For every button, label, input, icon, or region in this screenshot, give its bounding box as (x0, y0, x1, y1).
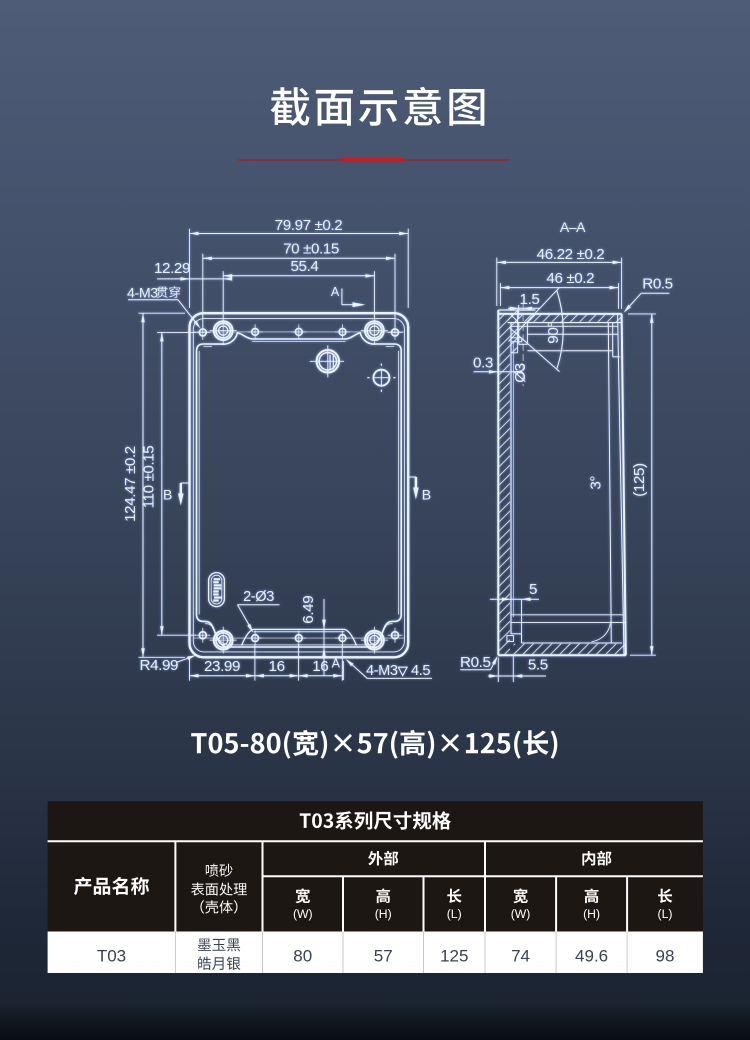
svg-text:110 ±0.15: 110 ±0.15 (141, 446, 158, 509)
svg-text:R0.5: R0.5 (460, 654, 490, 671)
svg-text:4-M3: 4-M3 (366, 663, 398, 679)
svg-text:(W): (W) (511, 907, 531, 921)
svg-text:49.6: 49.6 (575, 947, 608, 966)
svg-text:R0.5: R0.5 (642, 275, 672, 292)
svg-text:B: B (163, 487, 172, 503)
svg-text:A: A (332, 657, 341, 671)
svg-text:T03: T03 (97, 947, 126, 966)
svg-text:124.47 ±0.2: 124.47 ±0.2 (122, 446, 139, 522)
svg-text:125: 125 (440, 947, 468, 966)
svg-text:6.49: 6.49 (300, 596, 317, 624)
svg-text:90°: 90° (545, 322, 562, 344)
svg-text:(L): (L) (658, 907, 673, 921)
svg-text:23.99: 23.99 (204, 658, 240, 675)
svg-text:74: 74 (511, 947, 530, 966)
svg-text:(H): (H) (583, 907, 600, 921)
svg-text:B: B (422, 487, 431, 503)
svg-text:57: 57 (374, 947, 393, 966)
svg-text:1.5: 1.5 (520, 291, 540, 308)
svg-text:2-Ø3: 2-Ø3 (243, 589, 274, 605)
svg-text:5: 5 (529, 581, 537, 598)
svg-text:A: A (331, 285, 340, 299)
svg-text:46 ±0.2: 46 ±0.2 (546, 270, 594, 287)
svg-text:12.29: 12.29 (154, 260, 190, 277)
svg-text:46.22 ±0.2: 46.22 ±0.2 (537, 246, 605, 263)
svg-text:80: 80 (293, 947, 312, 966)
svg-text:79.97 ±0.2: 79.97 ±0.2 (275, 217, 343, 234)
svg-text:4-M3: 4-M3 (127, 285, 158, 301)
svg-text:Ø3: Ø3 (512, 363, 529, 382)
svg-text:4.5: 4.5 (411, 663, 430, 679)
svg-text:16: 16 (312, 658, 328, 675)
svg-text:(W): (W) (293, 907, 313, 921)
svg-text:(L): (L) (447, 907, 462, 921)
svg-text:(125): (125) (631, 463, 648, 497)
svg-text:3°: 3° (588, 476, 605, 490)
svg-text:5.5: 5.5 (528, 656, 548, 673)
svg-text:(H): (H) (375, 907, 392, 921)
svg-text:0.3: 0.3 (473, 355, 493, 372)
svg-text:98: 98 (656, 947, 675, 966)
svg-text:70 ±0.15: 70 ±0.15 (283, 240, 339, 257)
svg-text:A–A: A–A (560, 219, 586, 235)
svg-text:16: 16 (269, 658, 285, 675)
svg-text:R4.99: R4.99 (140, 657, 179, 674)
svg-text:55.4: 55.4 (291, 258, 319, 275)
